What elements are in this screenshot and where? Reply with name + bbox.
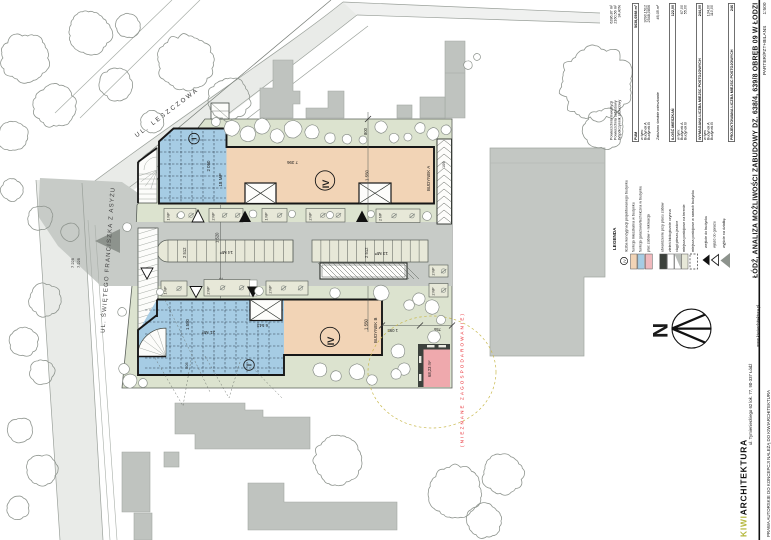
svg-text:7 225: 7 225 (70, 257, 75, 268)
svg-text:zieleń biologicznie czynna: zieleń biologicznie czynna (668, 208, 672, 252)
svg-text:7 225: 7 225 (76, 257, 81, 268)
svg-text:1 NP: 1 NP (164, 286, 168, 295)
svg-text:1:500: 1:500 (762, 2, 768, 14)
svg-text:1 550: 1 550 (365, 169, 370, 181)
svg-text:Założono średnie mieszkanie: Założono średnie mieszkanie (656, 92, 660, 141)
svg-text:109: 109 (442, 162, 446, 168)
svg-text:2 NP: 2 NP (379, 212, 383, 221)
svg-text:2 NP: 2 NP (432, 267, 436, 276)
svg-text:1 520: 1 520 (215, 232, 220, 243)
svg-text:BUDYNEK B: BUDYNEK B (373, 318, 378, 343)
svg-text:14 MP: 14 MP (220, 250, 233, 255)
svg-text:plac zabaw + rekreacja: plac zabaw + rekreacja (647, 213, 651, 252)
svg-text:Budynek B: Budynek B (684, 122, 688, 140)
svg-text:34,40%: 34,40% (618, 4, 622, 17)
svg-text:244,00: 244,00 (698, 5, 702, 16)
svg-text:PUM: PUM (634, 132, 638, 140)
svg-text:wyjście na działkę: wyjście na działkę (722, 218, 726, 248)
svg-text:PARTER/PZT+BILANS: PARTER/PZT+BILANS (762, 26, 768, 75)
svg-text:2 NP: 2 NP (309, 212, 313, 221)
svg-text:Współczynnik zabudowy: Współczynnik zabudowy (618, 100, 622, 140)
svg-text:2 NP: 2 NP (432, 287, 436, 296)
svg-text:wejście do budynku: wejście do budynku (704, 216, 708, 248)
svg-text:246: 246 (730, 5, 734, 11)
svg-text:2548,0856: 2548,0856 (647, 5, 651, 22)
svg-text:2 512: 2 512 (182, 247, 187, 258)
svg-text:miejsca postojowe w ramach bud: miejsca postojowe w ramach budynku (691, 190, 695, 252)
svg-text:I: I (192, 138, 199, 140)
svg-text:Budynek B: Budynek B (647, 122, 651, 140)
svg-text:www.kiwiarchitektura.pl: www.kiwiarchitektura.pl (756, 305, 761, 347)
svg-text:PRAWA AUTORSKIE DO KONCEPCJI N: PRAWA AUTORSKIE DO KONCEPCJI NALEŻĄ DO K… (766, 390, 771, 537)
svg-text:122,00: 122,00 (671, 5, 675, 16)
svg-text:ul. Tymienieckiego 62 lok. 7: ul. Tymienieckiego 62 lok. 77, 90-337 Łó… (748, 364, 753, 445)
svg-text:KIWIARCHITEKTURA: KIWIARCHITEKTURA (739, 439, 749, 537)
svg-text:55,00: 55,00 (684, 5, 688, 14)
svg-text:LEGENDA: LEGENDA (612, 227, 617, 250)
svg-text:2 NP: 2 NP (212, 212, 216, 221)
svg-text:miejsca postojowe na terenie: miejsca postojowe na terenie (682, 204, 686, 252)
svg-text:2 NP: 2 NP (269, 285, 273, 294)
svg-text:800: 800 (363, 127, 368, 135)
svg-text:68,23 m²: 68,23 m² (427, 360, 432, 377)
svg-text:505: 505 (184, 362, 189, 369)
svg-text:funkcja mieszkalna w budynku: funkcja mieszkalna w budynku (632, 202, 636, 252)
svg-text:funkcja garażowa/techniczna w: funkcja garażowa/techniczna w budynku (639, 186, 643, 252)
svg-text:46,05 m²: 46,05 m² (656, 4, 660, 19)
svg-text:PROJEKTOWANA LICZBA MIEJSC POS: PROJEKTOWANA LICZBA MIEJSC POSTOJOWYCH (730, 49, 734, 140)
svg-text:ciągi pieszo-jezdne: ciągi pieszo-jezdne (675, 221, 679, 252)
svg-text:7 396: 7 396 (286, 160, 298, 165)
svg-text:13 MP: 13 MP (375, 251, 388, 256)
svg-text:utwardzenie przy placu zabaw: utwardzenie przy placu zabaw (661, 202, 665, 252)
svg-text:1 NP: 1 NP (167, 212, 171, 221)
svg-text:1 550: 1 550 (185, 318, 190, 330)
svg-text:wjazd do garażu: wjazd do garażu (713, 221, 717, 248)
svg-text:BUDYNEK A: BUDYNEK A (426, 166, 431, 191)
svg-text:ŁÓDŹ, ANALIZA MOŻLIWOŚCI ZABU: ŁÓDŹ, ANALIZA MOŻLIWOŚCI ZABUDOWY DZ. 63… (750, 3, 759, 278)
svg-text:5638,6988 m²: 5638,6988 m² (634, 4, 638, 28)
svg-text:2 NP: 2 NP (207, 286, 211, 295)
svg-text:21 MP: 21 MP (202, 330, 215, 335)
svg-text:WYMAGANA LICZBA MIEJSC POSTOJO: WYMAGANA LICZBA MIEJSC POSTOJOWYCH (698, 58, 702, 140)
svg-text:110,00: 110,00 (710, 5, 714, 16)
svg-text:2 050: 2 050 (206, 160, 211, 172)
svg-text:18 MP: 18 MP (218, 173, 223, 186)
svg-text:Budynek B: Budynek B (710, 122, 714, 140)
svg-text:IV: IV (321, 180, 331, 189)
svg-text:2 512: 2 512 (364, 247, 369, 258)
svg-text:liczba kondygnacji projektowan: liczba kondygnacji projektowanego budynk… (625, 180, 629, 252)
svg-text:(NIEZNANE ZAGOSPODAROWANIE): (NIEZNANE ZAGOSPODAROWANIE) (460, 312, 465, 447)
svg-text:1 NP: 1 NP (265, 212, 269, 221)
svg-text:N: N (650, 323, 673, 338)
svg-text:6 543: 6 543 (256, 323, 268, 328)
svg-text:IV: IV (326, 337, 336, 346)
svg-text:ILOŚĆ MIESZKAŃ: ILOŚĆ MIESZKAŃ (670, 108, 675, 140)
